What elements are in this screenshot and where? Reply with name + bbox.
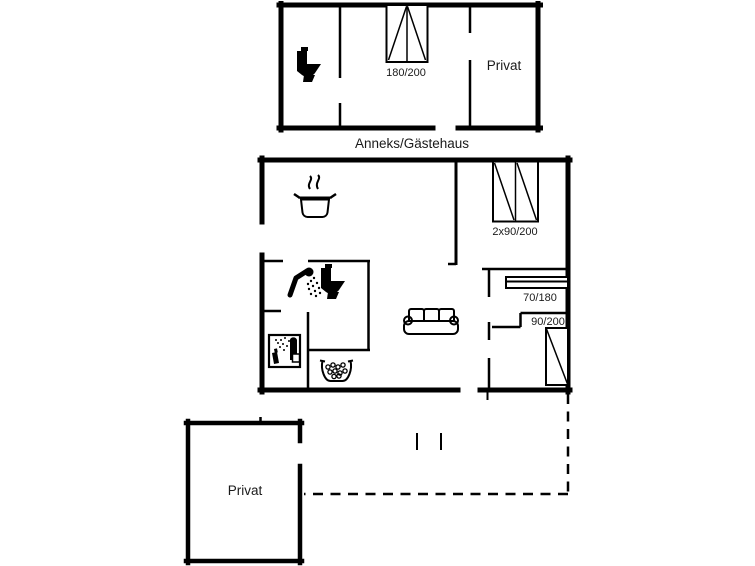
washing-machine-icon: [269, 335, 300, 367]
bunk-bed-size-label: 70/180: [523, 292, 557, 304]
double-bed-icon: [493, 162, 538, 222]
single-bed-size-label: 90/200: [531, 316, 565, 328]
floorplan-canvas: 180/200 Privat Anneks/Gästehaus: [0, 0, 755, 566]
double-bed-size-label: 2x90/200: [492, 226, 537, 238]
double-bed-icon: [387, 5, 428, 62]
annex-bed-size-label: 180/200: [386, 67, 426, 79]
single-bed-icon: [546, 328, 568, 385]
sofa-icon: [404, 309, 458, 334]
canvas-background: [0, 0, 755, 566]
annex-privat-label: Privat: [487, 58, 522, 73]
annex-caption: Anneks/Gästehaus: [355, 136, 469, 151]
bunk-bed-icon: [506, 277, 568, 288]
outbuilding-privat-label: Privat: [228, 483, 263, 498]
